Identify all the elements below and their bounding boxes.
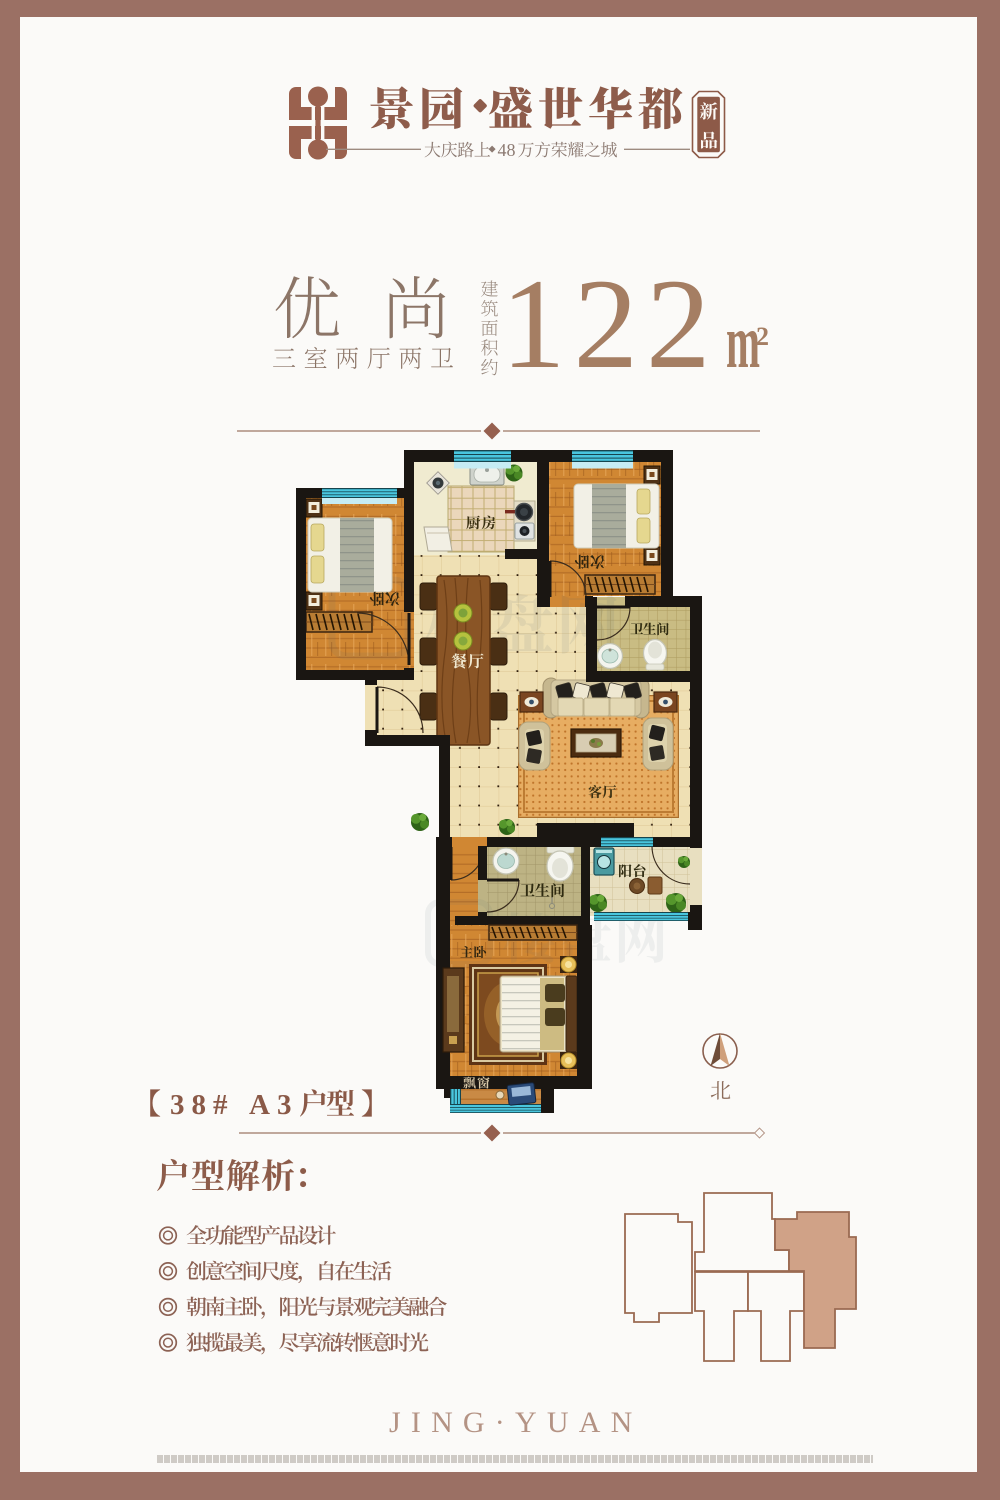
svg-text:A3: A3 — [249, 1089, 298, 1121]
svg-text:JING·YUAN: JING·YUAN — [389, 1406, 642, 1439]
svg-text:2: 2 — [756, 322, 769, 351]
svg-text:122: 122 — [501, 252, 719, 395]
svg-text:38#: 38# — [170, 1089, 235, 1121]
svg-text:m: m — [726, 300, 760, 384]
svg-text:48: 48 — [498, 140, 516, 160]
